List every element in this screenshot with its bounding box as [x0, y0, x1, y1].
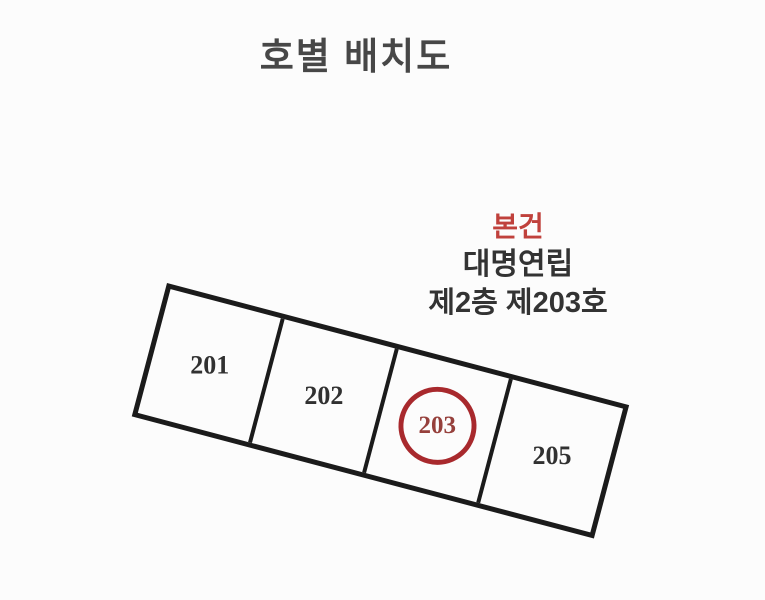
subject-highlight-circle: 203 — [390, 378, 485, 473]
unit-designation: 제2층 제203호 — [397, 284, 639, 322]
unit-number-203: 203 — [419, 412, 457, 440]
unit-number-202: 202 — [304, 381, 343, 411]
unit-number-201: 201 — [190, 351, 229, 381]
building-name: 대명연립 — [397, 246, 639, 284]
layout-diagram-page: 호별 배치도 본건 대명연립 제2층 제203호 201 202 203 205 — [0, 0, 765, 600]
page-title: 호별 배치도 — [0, 26, 712, 80]
subject-label: 본건 — [397, 208, 639, 246]
unit-number-205: 205 — [532, 441, 571, 471]
subject-annotation: 본건 대명연립 제2층 제203호 — [397, 208, 639, 322]
